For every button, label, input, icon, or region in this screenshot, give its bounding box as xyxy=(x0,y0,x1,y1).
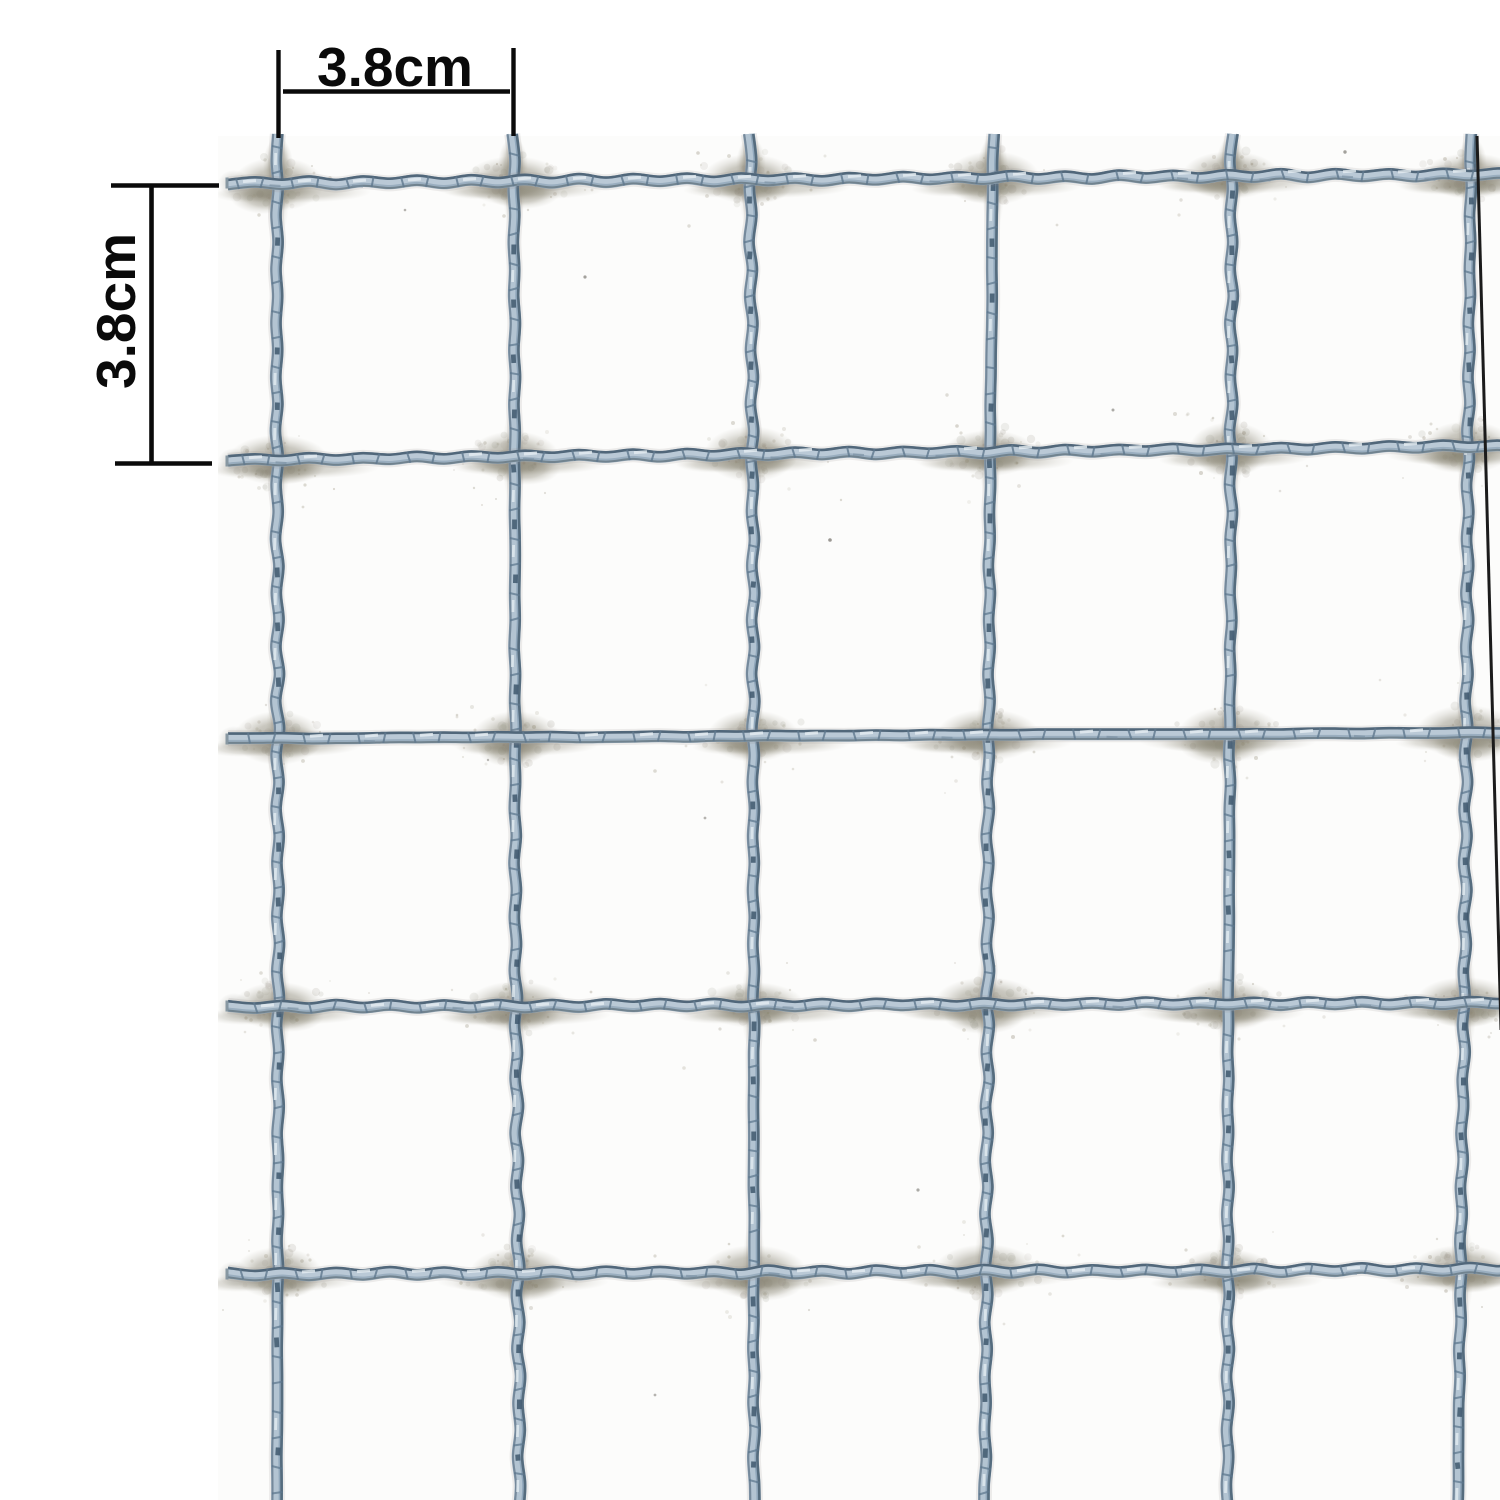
svg-text:3.8cm: 3.8cm xyxy=(317,36,473,98)
svg-text:3.8cm: 3.8cm xyxy=(85,233,147,389)
